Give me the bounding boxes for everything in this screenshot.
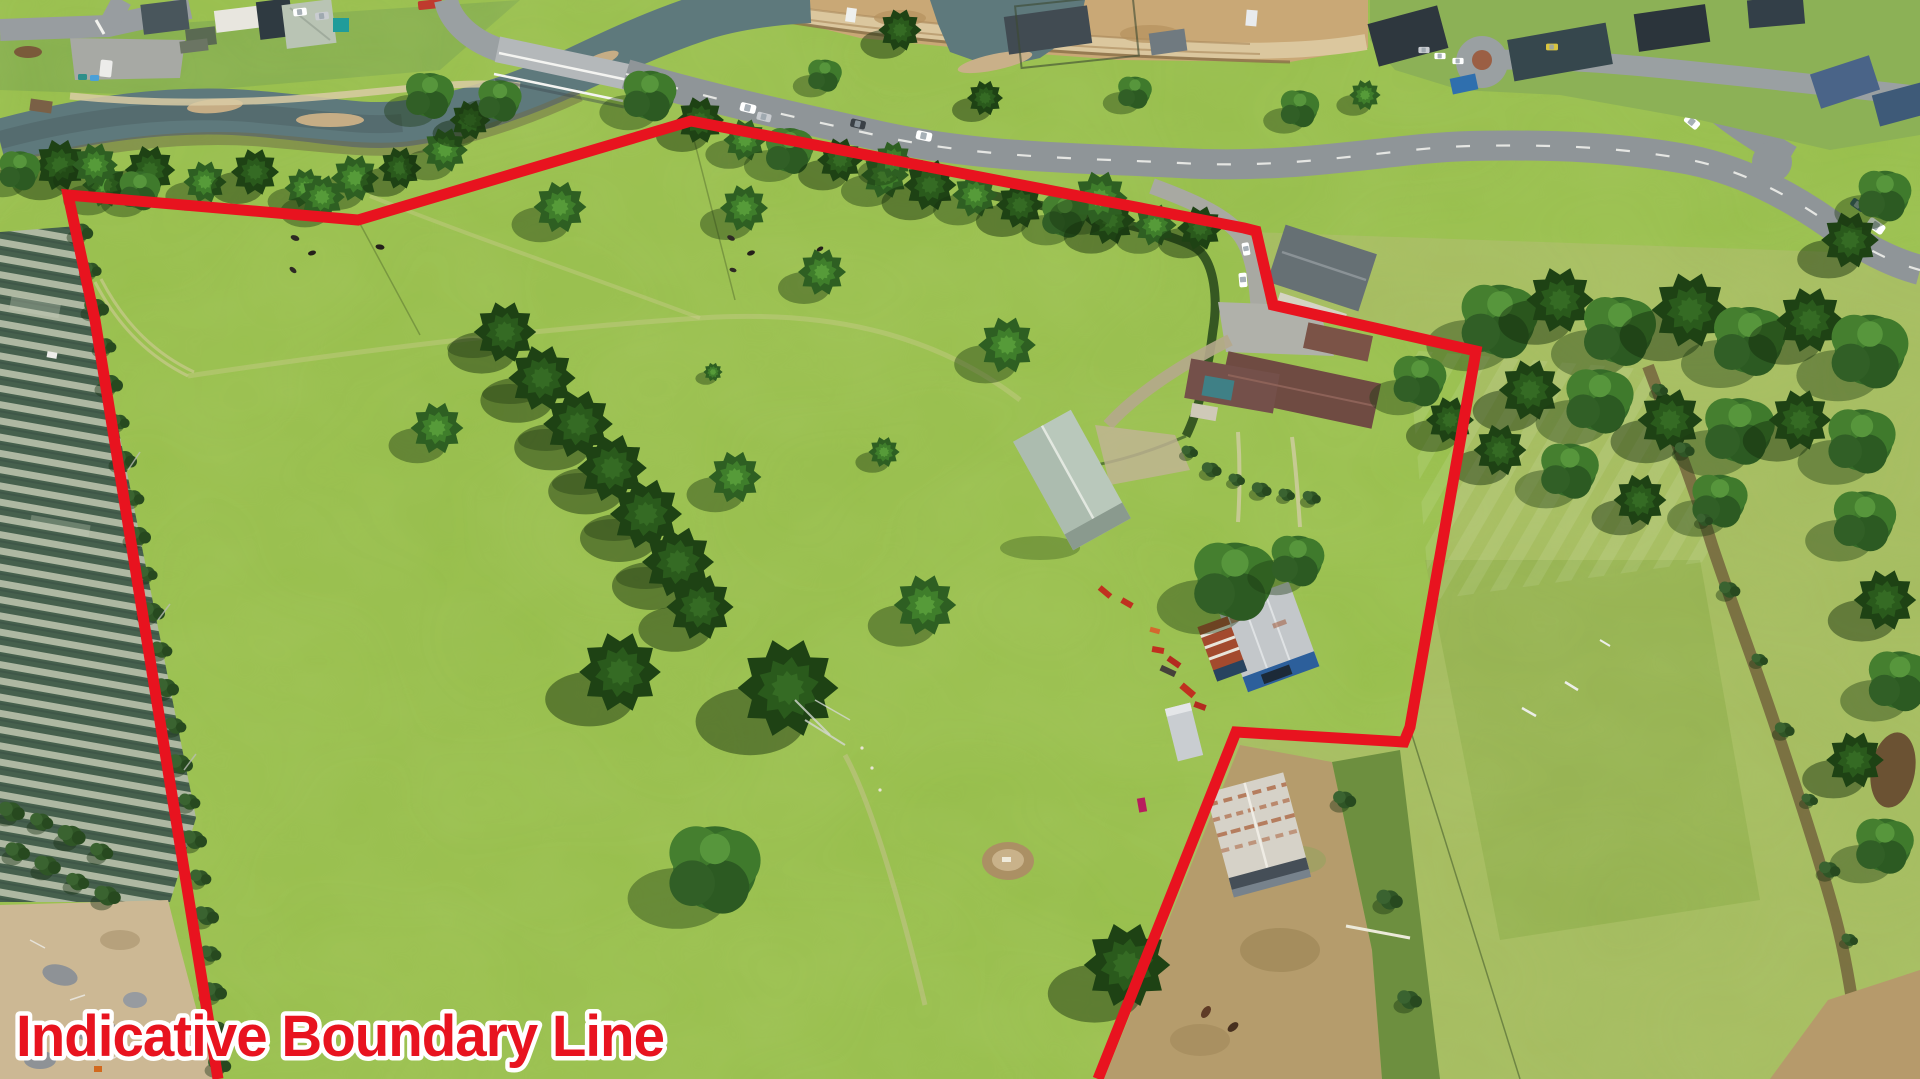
car [1452,58,1463,64]
garden-bed [14,46,42,58]
yellow-car [1546,44,1558,51]
aerial-photo: Indicative Boundary Line [0,0,1920,1079]
island [1472,50,1492,70]
building-roof [140,0,189,35]
dirt-circle [982,842,1034,880]
car [1434,53,1445,59]
parking-lot [70,38,185,80]
street [108,0,122,26]
portaloo [1245,10,1257,27]
car [90,75,99,81]
car [1238,272,1247,287]
sandbar [296,113,364,127]
car [78,74,87,80]
teal-building [333,18,349,32]
portaloo [845,7,857,22]
aerial-photo-canvas: Indicative Boundary Line [0,0,1920,1079]
boundary-label: Indicative Boundary Line [16,1004,664,1069]
van [99,59,113,77]
car [1418,47,1429,53]
